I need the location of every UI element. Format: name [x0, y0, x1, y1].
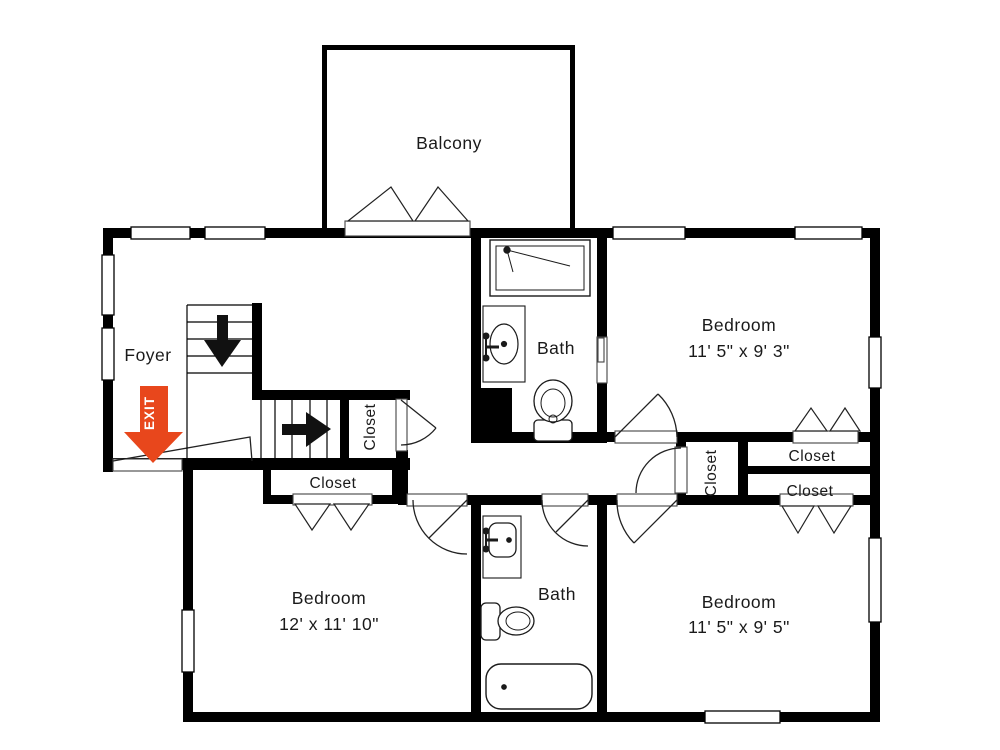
window-foyer-2: [102, 328, 114, 380]
wall-underclose-right: [392, 470, 400, 498]
faucet-handle-lower-1: [483, 528, 490, 535]
window-top-3: [613, 227, 685, 239]
floor-plan: EXIT Balcony Foyer Bath: [0, 0, 1000, 750]
window-bottom: [705, 711, 780, 723]
wall-underclose-left: [263, 470, 271, 498]
closet-under-stair-label: Closet: [310, 475, 357, 492]
threshold-hall-closet-door: [675, 447, 687, 493]
faucet-handle-upper-1: [483, 333, 490, 340]
window-foyer-1: [102, 255, 114, 315]
bedroomBL-size: 12' x 11' 10": [279, 614, 379, 634]
threshold-stair-closet-door: [396, 399, 407, 451]
balcony-wall-top: [322, 45, 575, 50]
sink-drain-lower: [507, 538, 511, 542]
floor-plan-svg: EXIT Balcony Foyer Bath: [0, 0, 1000, 750]
wall-bath-lower-left: [471, 505, 481, 712]
threshold-bedroomTR-door: [615, 431, 677, 443]
bedroomTR-size: 11' 5" x 9' 3": [688, 341, 790, 361]
sink-drain-upper: [502, 342, 507, 347]
toilet-bowl-lower: [498, 607, 534, 635]
window-top-4: [795, 227, 862, 239]
wall-stair-closet-divider: [340, 398, 349, 460]
threshold-bedroomBR-door: [617, 494, 677, 506]
threshold-bifold-closetTR: [793, 431, 858, 443]
wall-bath-lower-right: [597, 505, 607, 712]
threshold-balcony-door: [345, 221, 470, 236]
exit-label: EXIT: [142, 396, 157, 430]
pocket-door-leaf: [598, 338, 604, 362]
toilet-bowl-upper: [534, 380, 572, 422]
faucet-handle-upper-2: [483, 355, 490, 362]
closet-hall-label: Closet: [703, 449, 720, 496]
window-right-2: [869, 538, 881, 622]
wall-bath-upper-left: [471, 238, 481, 390]
bedroomBL-label: Bedroom: [292, 588, 367, 608]
outer-wall-left-bedroom: [183, 462, 193, 722]
threshold-bedroomBL-door: [407, 494, 467, 506]
window-right-1: [869, 337, 881, 388]
closet-right-upper-label: Closet: [789, 448, 836, 465]
window-top-2: [205, 227, 265, 239]
wall-stair-right: [252, 303, 262, 400]
bathtub-drain: [502, 685, 506, 689]
closet-right-lower-label: Closet: [787, 483, 834, 500]
bedroomBR-label: Bedroom: [702, 592, 777, 612]
closet-stair-label: Closet: [362, 403, 379, 450]
wall-stair-closet-top: [252, 390, 410, 400]
bedroomTR-label: Bedroom: [702, 315, 777, 335]
bedroomBR-size: 11' 5" x 9' 5": [688, 617, 790, 637]
stair-right-arrow-shaft: [282, 424, 306, 435]
window-bedroomBL: [182, 610, 194, 672]
stair-down-arrow-shaft: [217, 315, 228, 340]
threshold-bifold-underclose: [293, 494, 372, 505]
bath-lower-label: Bath: [538, 584, 576, 604]
faucet-handle-lower-2: [483, 546, 490, 553]
threshold-entry-door: [113, 459, 182, 471]
wall-closet-pair-divider: [747, 466, 870, 474]
wall-bath-upper-right-a: [597, 238, 607, 337]
window-top-1: [131, 227, 190, 239]
foyer-label: Foyer: [124, 345, 171, 365]
threshold-bath-lower-door: [542, 494, 588, 506]
wall-bath-upper-right-b: [597, 383, 607, 443]
toilet-tank-lower: [481, 603, 500, 640]
bath-upper-label: Bath: [537, 338, 575, 358]
balcony-wall-right: [570, 45, 575, 228]
balcony-label: Balcony: [416, 133, 482, 153]
outer-wall-right: [870, 228, 880, 722]
balcony-wall-left: [322, 45, 327, 228]
